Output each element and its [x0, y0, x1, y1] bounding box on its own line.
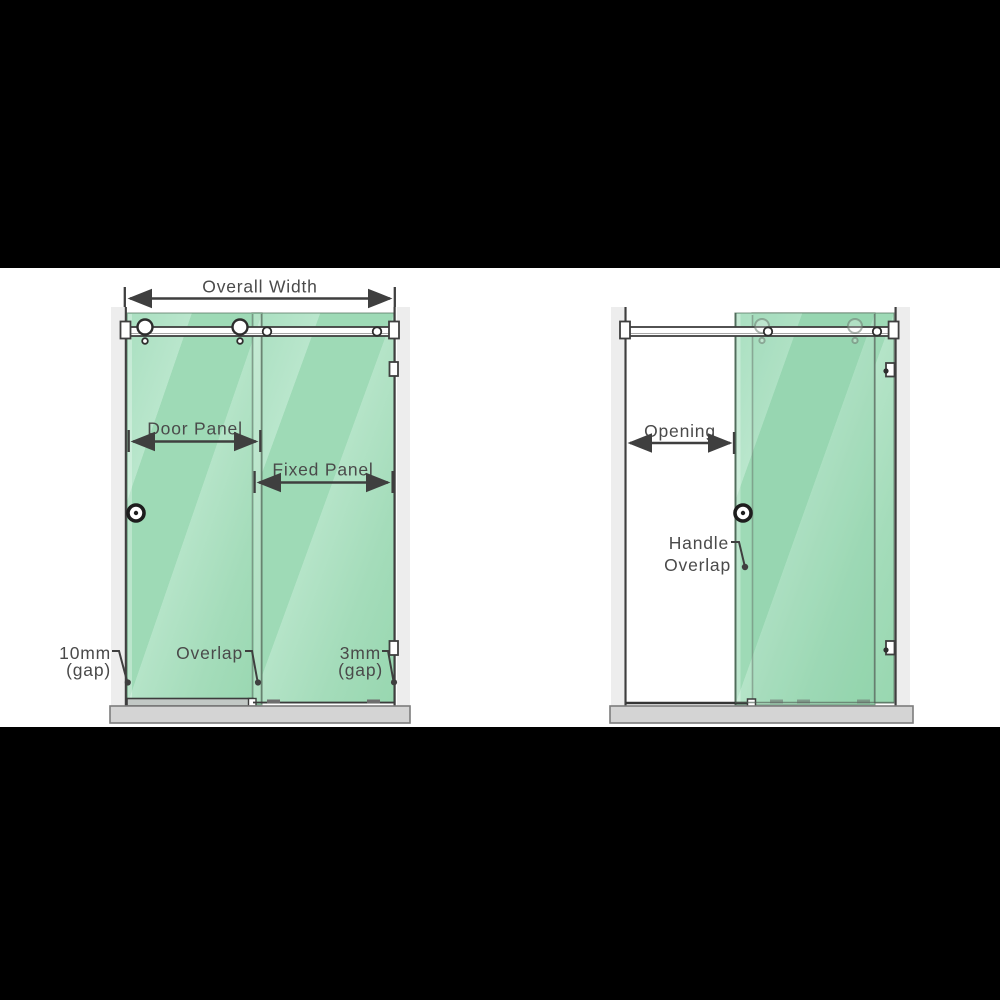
door-panel-label: Door Panel [147, 419, 243, 439]
overlap-label: Overlap [176, 643, 243, 663]
roller-pin-left [142, 338, 148, 344]
ghost-roller-pin-left [759, 338, 764, 343]
right-wall-strip [397, 307, 410, 723]
bottom-black-bar [0, 727, 1000, 1000]
wall-bracket-top-screw [883, 368, 888, 373]
rail-bracket-circle-2 [373, 327, 382, 336]
ghost-roller-pin-right [852, 338, 857, 343]
left-gap-suffix: (gap) [66, 660, 111, 680]
wall-bracket-bottom [390, 641, 399, 655]
top-black-bar [0, 0, 1000, 268]
closed-position-diagram: Overall Width Door Panel Fixed Panel 10m… [59, 277, 410, 724]
ghost-bottom-clamp-3 [857, 700, 870, 704]
shower-base-tray [110, 706, 410, 723]
roller-pin-right [237, 338, 243, 344]
wall-bracket-top [390, 362, 399, 376]
overlap-tint [753, 314, 874, 702]
rail-end-cap-right [389, 322, 399, 339]
shower-screen-diagram: Overall Width Door Panel Fixed Panel 10m… [0, 0, 1000, 1000]
door-handle-center [741, 511, 745, 515]
right-wall-strip [897, 307, 910, 723]
left-gap-leader-dot [125, 679, 131, 685]
handle-overlap-leader-dot [742, 564, 748, 570]
handle-overlap-label: Overlap [664, 555, 731, 575]
roller-wheel-left [138, 320, 153, 335]
rail-bracket-circle-1 [263, 327, 272, 336]
diagram-svg: Overall Width Door Panel Fixed Panel 10m… [0, 0, 1000, 1000]
ghost-bottom-clamp-1 [770, 700, 783, 704]
right-gap-leader-dot [391, 679, 397, 685]
roller-wheel-right [233, 320, 248, 335]
opening-label: Opening [644, 421, 716, 441]
bottom-clamp-2 [367, 700, 380, 704]
door-handle-center [134, 511, 138, 515]
fixed-panel-label: Fixed Panel [272, 460, 373, 480]
bottom-clamp-1 [267, 700, 280, 704]
rail-bracket-circle-1 [764, 327, 772, 335]
handle-label: Handle [669, 533, 729, 553]
left-wall-strip [611, 307, 624, 723]
rail-end-cap-right [889, 322, 899, 339]
shower-base-tray [610, 706, 913, 723]
right-gap-suffix: (gap) [338, 660, 383, 680]
ghost-bottom-clamp-2 [797, 700, 810, 704]
overlap-band [254, 314, 261, 702]
rail-bracket-circle-2 [873, 327, 881, 335]
wall-bracket-bottom-screw [883, 647, 888, 652]
rail-end-cap-left [121, 322, 131, 339]
rail-end-cap-left [620, 322, 630, 339]
door-bottom-seal [127, 699, 253, 707]
overlap-leader-dot [255, 679, 261, 685]
overall-width-label: Overall Width [202, 277, 317, 297]
ghost-roller-wheel-right [848, 319, 862, 333]
top-rail [126, 327, 394, 336]
